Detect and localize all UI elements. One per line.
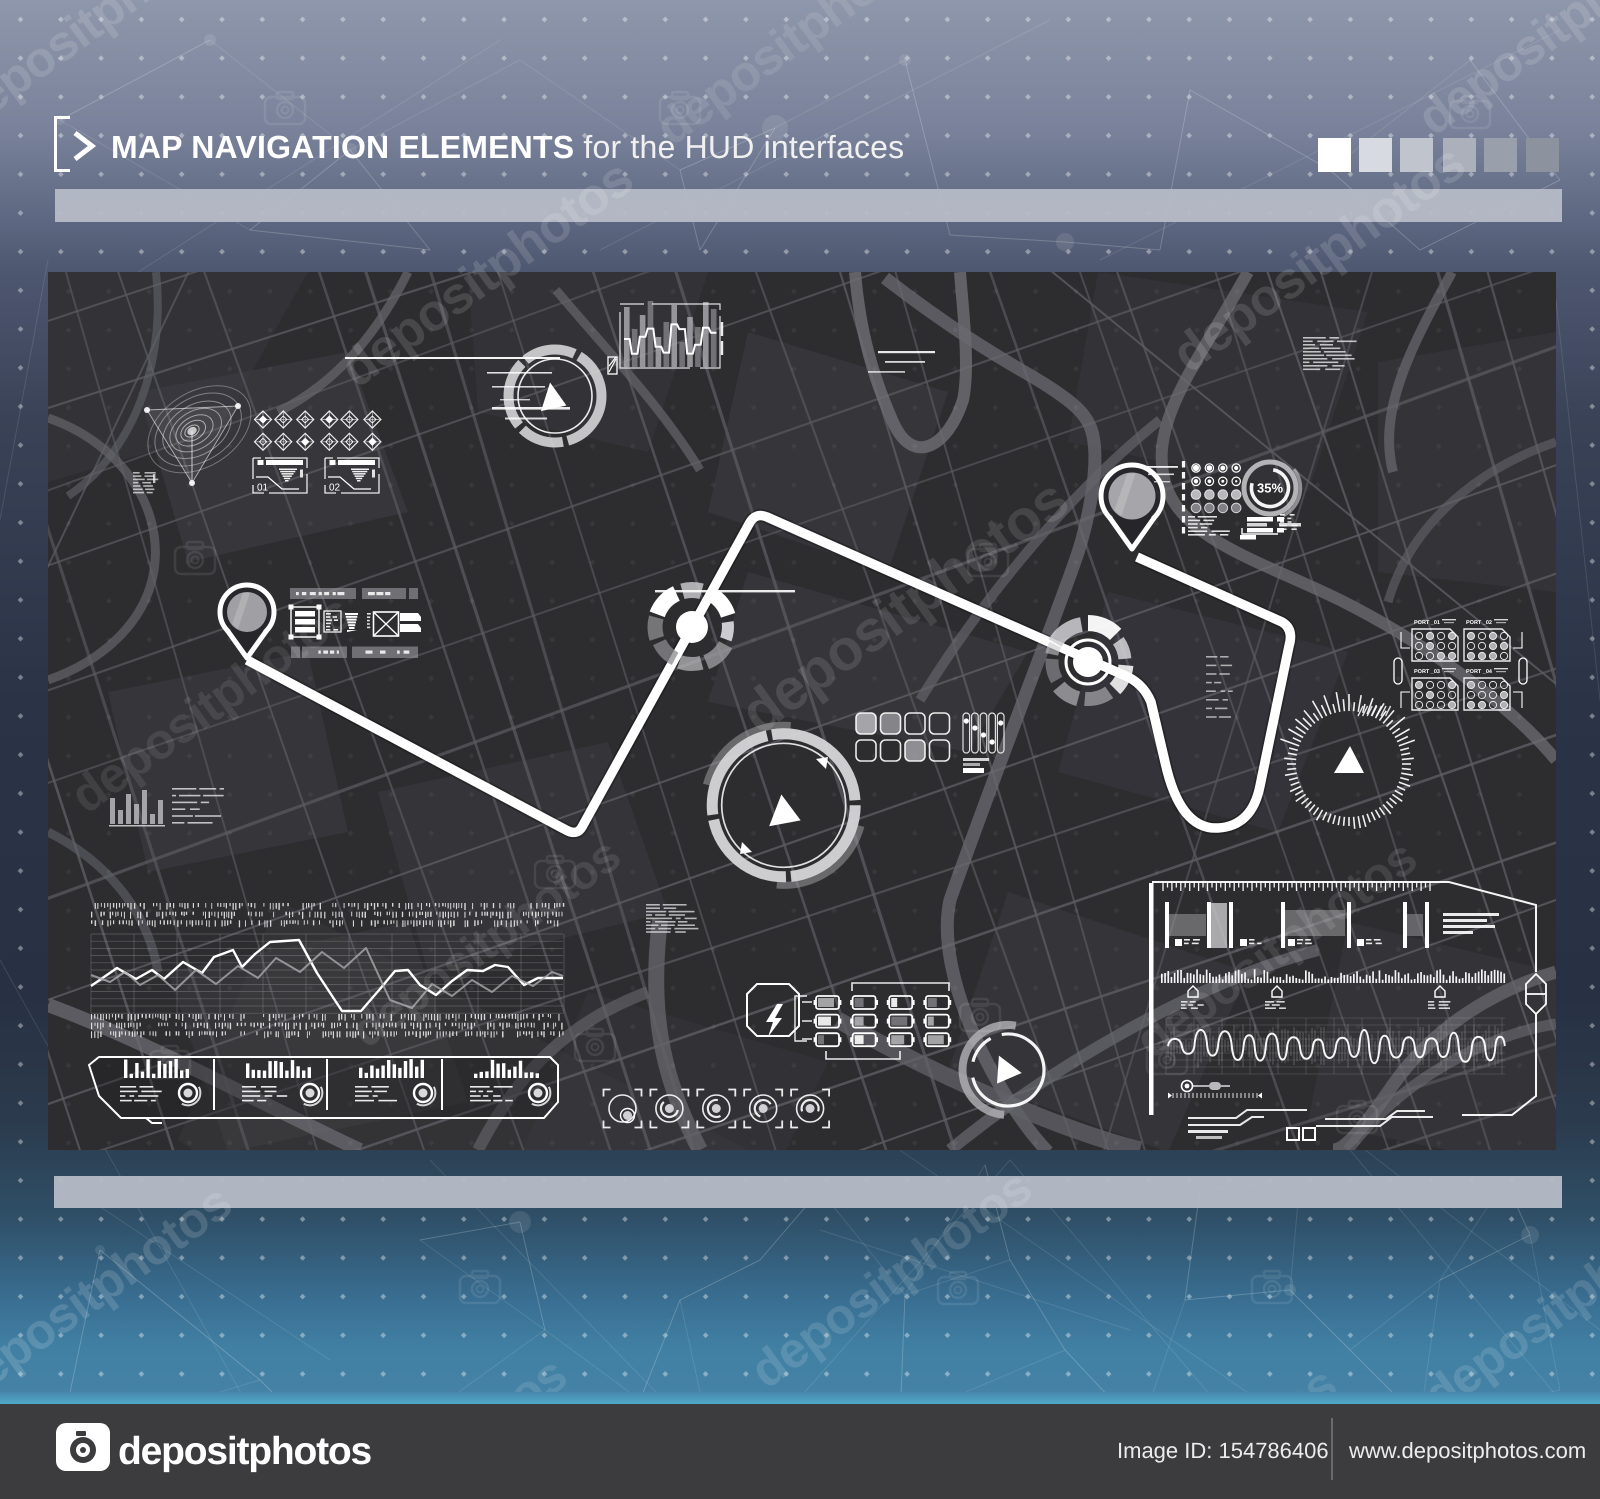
svg-text:01: 01 xyxy=(257,483,269,494)
svg-text:PORT _04: PORT _04 xyxy=(1466,669,1493,675)
svg-text:PORT _02: PORT _02 xyxy=(1466,620,1492,626)
svg-text:35%: 35% xyxy=(1257,481,1283,496)
svg-text:02: 02 xyxy=(329,483,341,494)
svg-text:PORT _01: PORT _01 xyxy=(1414,620,1440,626)
svg-text:PORT _03: PORT _03 xyxy=(1414,669,1440,675)
